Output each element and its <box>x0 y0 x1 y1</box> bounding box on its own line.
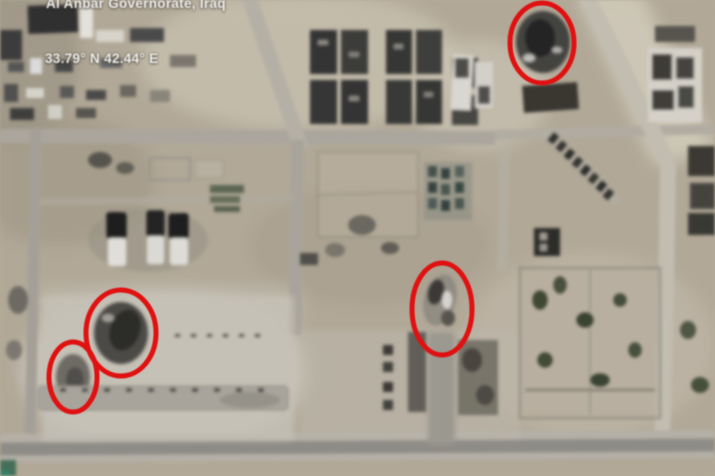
satellite-screenshot: Al Anbar Governorate, Iraq 33.79° N 42.4… <box>0 0 715 476</box>
coordinates-label: 33.79° N 42.44° E <box>45 51 158 66</box>
fuel-tanks <box>88 208 208 272</box>
location-label: Al Anbar Governorate, Iraq <box>46 0 226 11</box>
satellite-imagery <box>0 0 715 476</box>
green-corner <box>0 460 16 476</box>
